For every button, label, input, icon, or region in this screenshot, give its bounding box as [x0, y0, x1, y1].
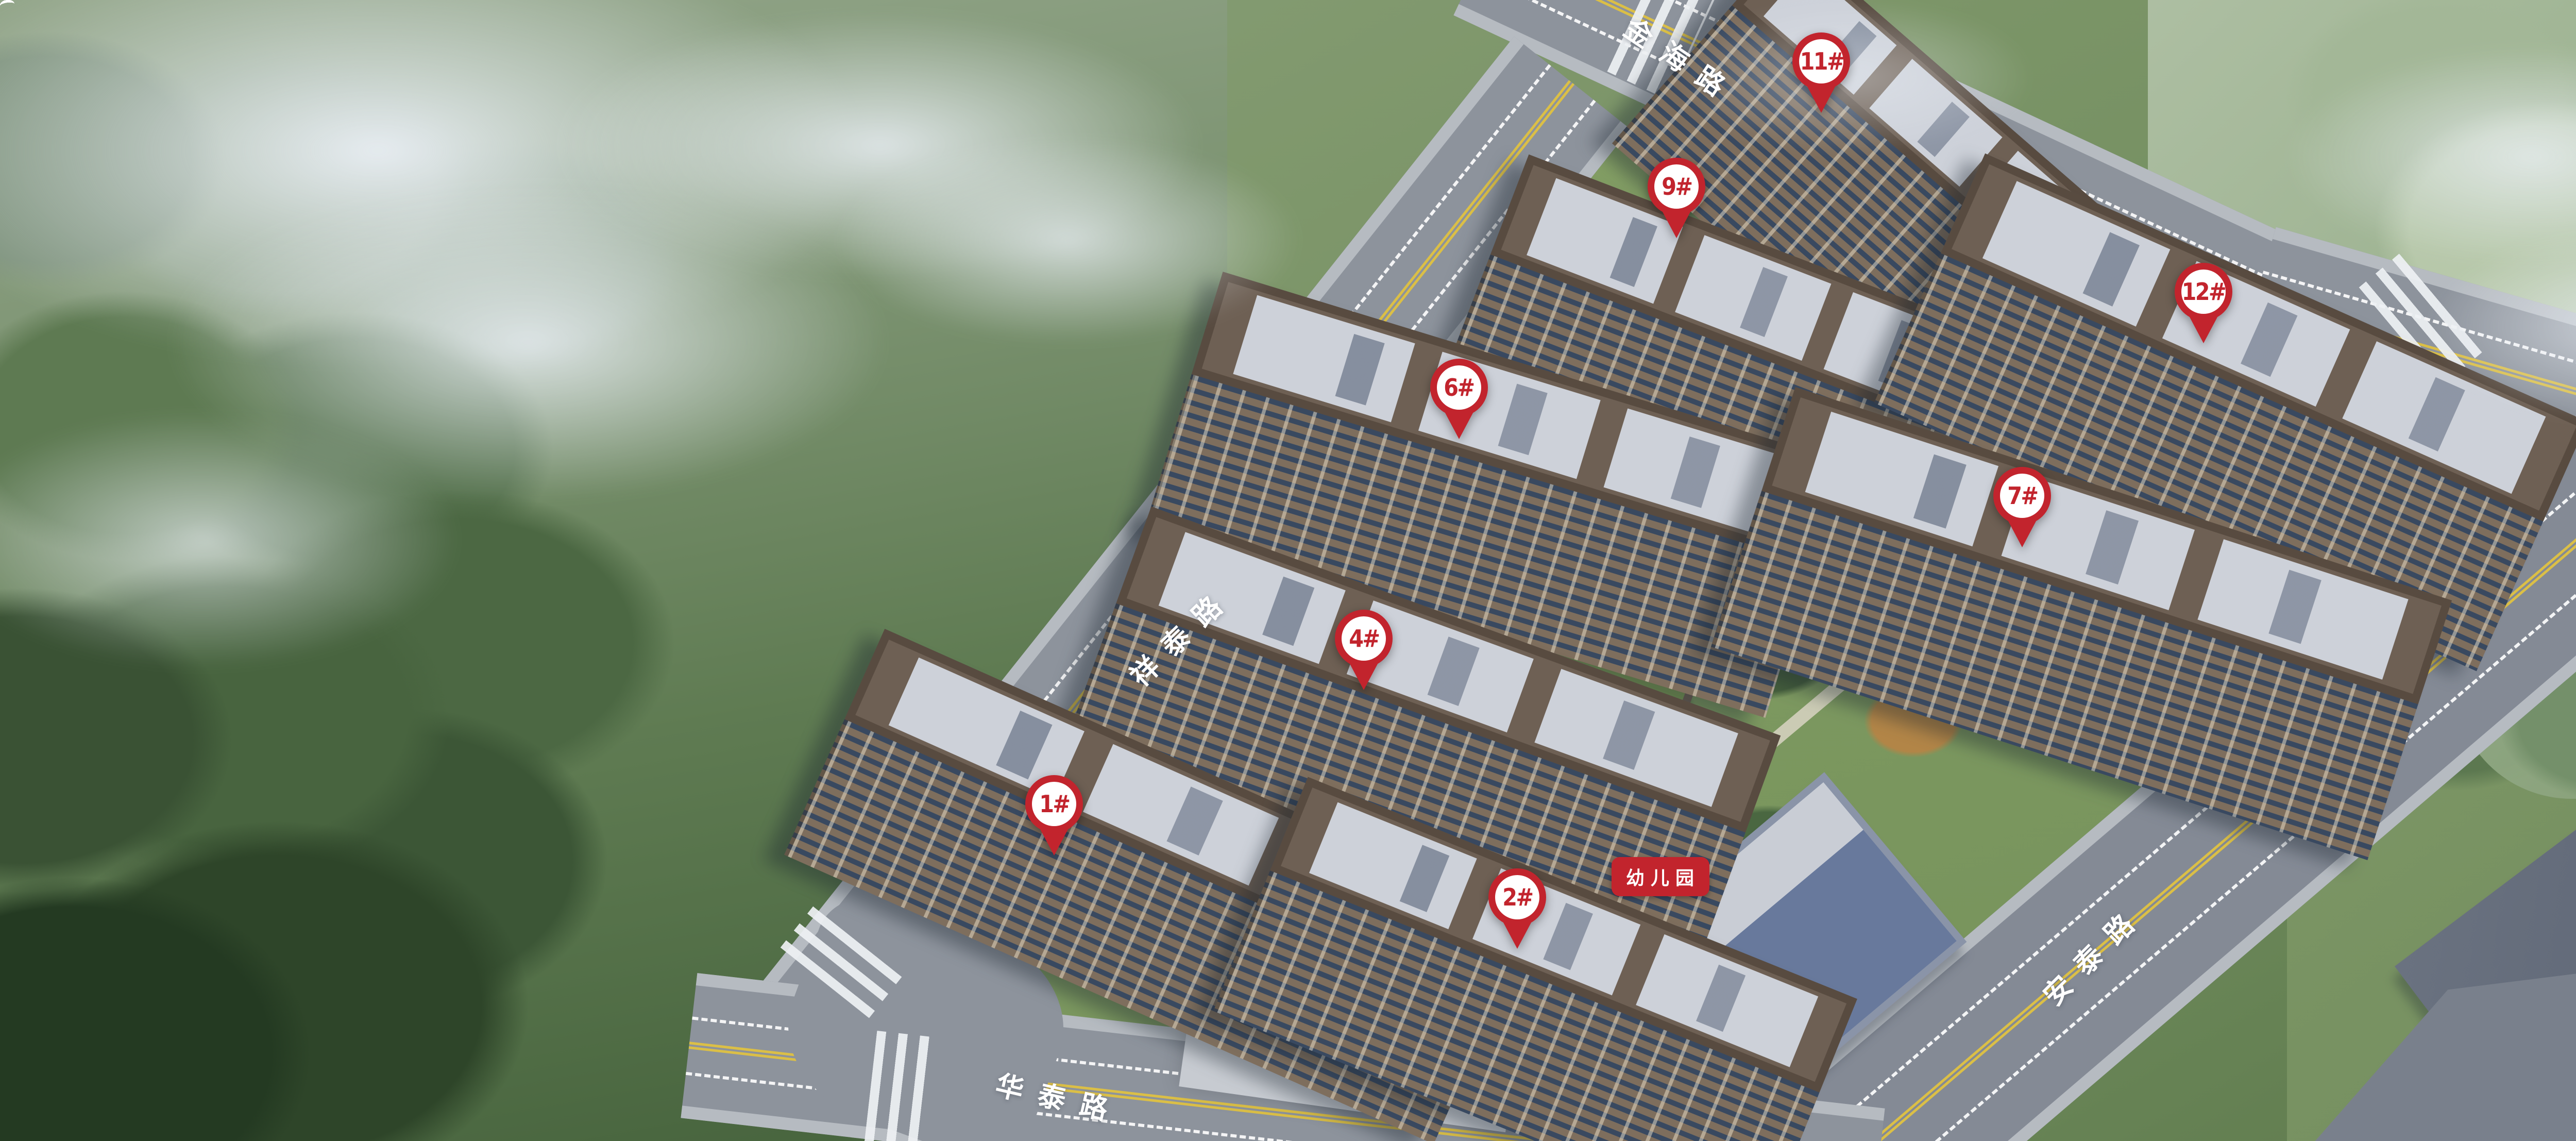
marker-label: 2#	[1502, 883, 1532, 911]
building-marker-12: 12#	[2175, 263, 2232, 343]
marker-circle: 2#	[1488, 868, 1546, 926]
marker-circle: 4#	[1335, 610, 1393, 667]
marker-circle: 6#	[1430, 359, 1488, 416]
crosswalk	[863, 1031, 938, 1141]
marker-label: 7#	[2007, 482, 2037, 510]
marker-label: 11#	[1800, 47, 1843, 75]
building-marker-9: 9#	[1648, 158, 1705, 238]
marker-circle: 7#	[1993, 467, 2051, 525]
aerial-masterplan-render: 金海路祥泰路安泰路华泰路 1#2#4#6#7#9#11#12# 幼儿园 鸟瞰图	[0, 0, 2576, 1141]
marker-label: 4#	[1349, 625, 1379, 652]
marker-circle: 12#	[2175, 263, 2232, 321]
building-marker-1: 1#	[1025, 775, 1083, 855]
marker-circle: 11#	[1792, 32, 1850, 90]
marker-label: 6#	[1444, 374, 1473, 401]
marker-circle: 1#	[1025, 775, 1083, 833]
building-marker-11: 11#	[1792, 32, 1850, 113]
marker-label: 9#	[1662, 173, 1691, 200]
fog-cloud	[837, 137, 1300, 343]
building-marker-4: 4#	[1335, 610, 1393, 690]
building-marker-6: 6#	[1430, 359, 1488, 439]
kindergarten-badge: 幼儿园	[1612, 857, 1709, 896]
building-marker-7: 7#	[1993, 467, 2051, 547]
marker-label: 1#	[1039, 790, 1069, 818]
marker-circle: 9#	[1648, 158, 1705, 215]
building-marker-2: 2#	[1488, 868, 1546, 949]
marker-label: 12#	[2182, 278, 2225, 306]
